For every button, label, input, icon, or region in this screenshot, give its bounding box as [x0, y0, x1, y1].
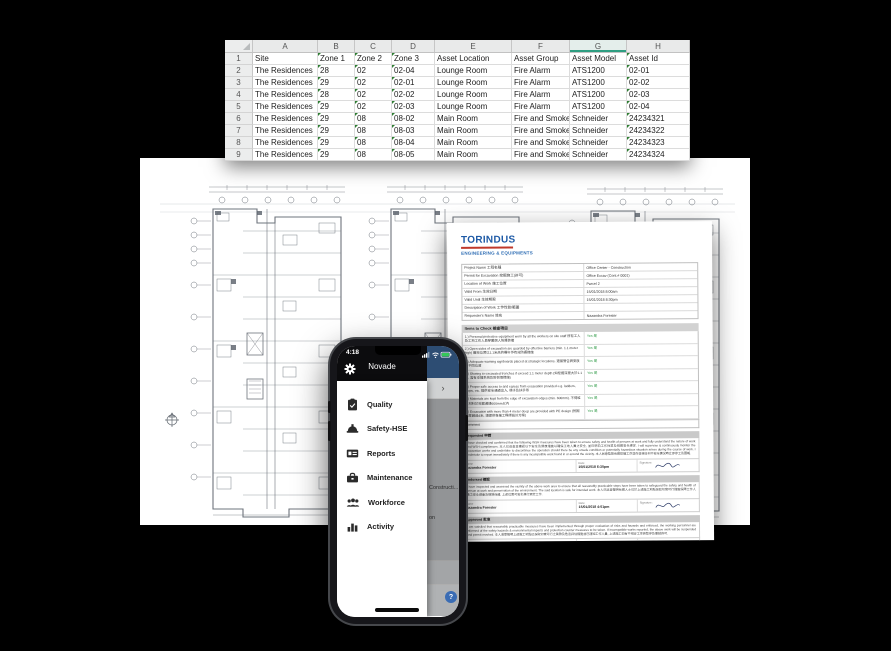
cell-asset-location[interactable]: Main Room	[435, 113, 512, 125]
checklist-answer: Yes 是	[585, 369, 698, 381]
cell-zone3[interactable]: 08-04	[392, 137, 435, 149]
column-header-a[interactable]: A	[253, 40, 318, 52]
checklist-table: 1.) Personal protective equipment worn b…	[462, 331, 700, 422]
table-row: 8 The Residences 29 08 08-04 Main Room F…	[225, 137, 690, 149]
cell-zone1[interactable]: 28	[318, 89, 355, 101]
cell-site[interactable]: The Residences	[253, 77, 318, 89]
cell-site[interactable]: The Residences	[253, 149, 318, 161]
section-body: I have inspected and assessed the vicini…	[463, 482, 700, 501]
cell-zone2[interactable]: Zone 2	[355, 53, 392, 65]
cell-site[interactable]: The Residences	[253, 65, 318, 77]
row-header[interactable]: 6	[225, 113, 253, 125]
column-header-h[interactable]: H	[627, 40, 690, 52]
cell-site[interactable]: Site	[253, 53, 318, 65]
cell-zone1[interactable]: 29	[318, 125, 355, 137]
row-header[interactable]: 3	[225, 77, 253, 89]
info-label: Valid From 生效日期	[462, 288, 584, 296]
table-row: 3 The Residences 29 02 02-01 Lounge Room…	[225, 77, 690, 89]
column-header-c[interactable]: C	[355, 40, 392, 52]
checklist-item-text: 2.) Open sides of excavation are guarded…	[463, 345, 585, 357]
checklist-answer: Yes 是	[585, 407, 698, 419]
cell-site[interactable]: The Residences	[253, 113, 318, 125]
help-button[interactable]: ?	[445, 591, 457, 603]
bar-chart-icon	[346, 520, 359, 533]
menu-item-maintenance[interactable]: Maintenance	[337, 468, 427, 488]
menu-item-activity[interactable]: Activity	[337, 517, 427, 537]
menu-item-reports[interactable]: Reports	[337, 443, 427, 463]
signature-scribble	[655, 540, 681, 542]
company-logo-subtitle: ENGINEERING & EQUIPMENTS	[461, 249, 698, 256]
checklist-item-text: 5.) Proper safe access to and egress fro…	[463, 382, 585, 394]
north-arrow-icon	[165, 413, 179, 427]
home-indicator[interactable]	[375, 608, 419, 612]
cell-asset-model[interactable]: Schneider	[570, 113, 627, 125]
checklist-answer: Yes 是	[585, 344, 698, 356]
info-value: Parcel 2	[584, 280, 697, 287]
table-row: 2 The Residences 28 02 02-04 Lounge Room…	[225, 65, 690, 77]
dimmed-app-background: › Constructi... on ?	[427, 346, 459, 617]
cell-asset-id[interactable]: 24234321	[627, 113, 690, 125]
people-icon	[346, 496, 360, 509]
row-header[interactable]: 8	[225, 137, 253, 149]
app-title: Novade	[337, 362, 427, 371]
signature-scribble	[654, 500, 680, 510]
cell-zone3[interactable]: 08-02	[392, 113, 435, 125]
signature-label: Signature:	[640, 500, 653, 504]
menu-label: Activity	[367, 522, 394, 531]
cell-zone2[interactable]: 08	[355, 125, 392, 137]
cell-zone1[interactable]: 29	[318, 137, 355, 149]
signature-cell: Signature:	[637, 459, 698, 471]
checklist-item-text: 3.) Adequate warning signboards placed a…	[463, 357, 585, 369]
spreadsheet-panel: A B C D E F G H 1 Site Zone 1 Zone 2 Zon…	[225, 40, 690, 161]
column-header-g-selected[interactable]: G	[570, 40, 627, 52]
row-header[interactable]: 2	[225, 65, 253, 77]
menu-item-quality[interactable]: Quality	[337, 394, 427, 414]
cell-asset-model[interactable]: Schneider	[570, 125, 627, 137]
checklist-item-text: 6.) Materials are kept from the edge of …	[463, 395, 585, 407]
cell-asset-model[interactable]: ATS1200	[570, 89, 627, 101]
cell-asset-location[interactable]: Lounge Room	[435, 101, 512, 113]
cell-asset-model[interactable]: ATS1200	[570, 65, 627, 77]
signature-row: Name Ken Ng Date: 15/01/2018 2:30pm Sign…	[463, 539, 700, 542]
cell-zone1[interactable]: 29	[318, 101, 355, 113]
cell-asset-model[interactable]: Schneider	[570, 149, 627, 161]
cell-zone1[interactable]: 29	[318, 149, 355, 161]
dimmed-footer-band: ?	[427, 585, 459, 616]
date-label: Date:	[579, 540, 635, 542]
cell-zone3[interactable]: 08-03	[392, 125, 435, 137]
section-body: I am satisfied that reasonably practicab…	[463, 522, 700, 541]
power-button[interactable]	[465, 415, 468, 441]
row-header[interactable]: 7	[225, 125, 253, 137]
info-label: Valid Until 生效期限	[462, 296, 584, 304]
table-row: 5 The Residences 29 02 02-03 Lounge Room…	[225, 101, 690, 113]
cell-asset-group[interactable]: Fire and Smoke A	[512, 149, 570, 161]
cell-zone3[interactable]: 02-03	[392, 101, 435, 113]
cell-asset-location[interactable]: Main Room	[435, 137, 512, 149]
cell-zone3[interactable]: 02-02	[392, 89, 435, 101]
cell-asset-location[interactable]: Main Room	[435, 125, 512, 137]
mute-switch[interactable]	[328, 401, 331, 413]
table-row: 9 The Residences 29 08 08-05 Main Room F…	[225, 149, 690, 161]
info-value: Office Excav (Cont.# 0001)	[584, 272, 697, 279]
checklist-answer: Yes 是	[585, 356, 698, 368]
company-logo-text: TORINDUS	[461, 233, 698, 246]
cell-asset-id[interactable]: 24234323	[627, 137, 690, 149]
column-header-e[interactable]: E	[435, 40, 512, 52]
cell-zone3[interactable]: Zone 3	[392, 53, 435, 65]
cell-asset-id[interactable]: 02-02	[627, 77, 690, 89]
cell-zone1[interactable]: 29	[318, 113, 355, 125]
signature-sections: Requested 申請 I have checked and confirme…	[462, 431, 700, 542]
cell-asset-group[interactable]: Fire and Smoke A	[512, 125, 570, 137]
toolbox-icon	[346, 471, 359, 484]
cell-asset-model[interactable]: ATS1200	[570, 101, 627, 113]
dimmed-band	[427, 561, 459, 585]
checklist-row: 7.) Excavation with more than 4 meter de…	[463, 407, 698, 421]
menu-item-safety-hse[interactable]: Safety-HSE	[337, 419, 427, 439]
cell-asset-group[interactable]: Fire and Smoke A	[512, 137, 570, 149]
checklist-answer: Yes 是	[585, 381, 698, 393]
checklist-answer: Yes 是	[585, 331, 698, 343]
signature-section: Endorsed 確認 I have inspected and assesse…	[463, 475, 700, 514]
battery-icon	[441, 352, 451, 357]
cell-zone2[interactable]: 08	[355, 137, 392, 149]
info-label: Location of Work 施工位置	[462, 280, 584, 288]
cell-asset-location[interactable]: Lounge Room	[435, 65, 512, 77]
menu-item-workforce[interactable]: Workforce	[337, 492, 427, 512]
sign-date-cell: Date: 15/01/2018 4:01pm	[577, 499, 638, 511]
signer-name: Nazandra Forester	[466, 505, 574, 510]
cell-asset-id[interactable]: 02-03	[627, 89, 690, 101]
partial-project-text-2: on	[429, 515, 435, 521]
sign-date-cell: Date: 15/01/2018 6:30pm	[576, 459, 637, 471]
cell-asset-id[interactable]: 24234322	[627, 125, 690, 137]
wifi-icon	[433, 353, 439, 358]
cell-zone2[interactable]: 02	[355, 101, 392, 113]
select-all-corner[interactable]	[225, 40, 253, 52]
row-header[interactable]: 4	[225, 89, 253, 101]
signature-section: Approved 批准 I am satisfied that reasonab…	[463, 515, 700, 542]
sheet-rows: 1 Site Zone 1 Zone 2 Zone 3 Asset Locati…	[225, 53, 690, 161]
cell-zone2[interactable]: 02	[355, 89, 392, 101]
signature-section: Requested 申請 I have checked and confirme…	[462, 431, 699, 473]
permit-info-table: Project Name 工程名稱 Office Center - Constr…	[461, 262, 698, 321]
sign-date-cell: Date: 15/01/2018 2:30pm	[577, 539, 638, 542]
column-header-b[interactable]: B	[318, 40, 355, 52]
cell-site[interactable]: The Residences	[253, 89, 318, 101]
signature-row: Name Nazandra Forester Date: 15/01/2018 …	[463, 499, 700, 514]
status-time: 4:18	[346, 349, 359, 356]
info-label: Permit for Excavation 挖掘施工(許可)	[462, 272, 584, 280]
id-card-icon	[346, 447, 359, 460]
list-row-chevron[interactable]: ›	[427, 378, 459, 399]
status-icons	[422, 350, 452, 359]
info-label: Description of Work 工作性質/範圍	[462, 304, 584, 312]
signature-row: Name Nazandra Forester Date: 15/01/2018 …	[463, 459, 700, 474]
section-body: I have checked and confirmed that the fo…	[462, 438, 699, 460]
row-header[interactable]: 9	[225, 149, 253, 161]
cell-asset-model[interactable]: Schneider	[570, 137, 627, 149]
cell-zone1[interactable]: 29	[318, 77, 355, 89]
cell-zone2[interactable]: 02	[355, 65, 392, 77]
cell-asset-id[interactable]: Asset Id	[627, 53, 690, 65]
info-label: Project Name 工程名稱	[462, 264, 584, 272]
cell-asset-model[interactable]: Asset Model	[570, 53, 627, 65]
signature-label: Signature:	[640, 540, 653, 542]
cell-asset-location[interactable]: Asset Location	[435, 53, 512, 65]
info-row: Requester's Name 姓名 Nazandra Forester	[463, 311, 698, 320]
cell-zone1[interactable]: 28	[318, 65, 355, 77]
cell-asset-location[interactable]: Main Room	[435, 149, 512, 161]
table-row: 7 The Residences 29 08 08-03 Main Room F…	[225, 125, 690, 137]
cell-asset-group[interactable]: Asset Group	[512, 53, 570, 65]
signer-name-cell: Name Ken Ng	[464, 539, 577, 541]
cell-site[interactable]: The Residences	[253, 137, 318, 149]
checklist-item-text: 7.) Excavation with more than 4 meter de…	[463, 407, 585, 419]
name-label: Name	[466, 541, 574, 542]
checklist-item-text: 4.) Shoring to excavated trenches if exc…	[463, 370, 585, 382]
permit-document: TORINDUS ENGINEERING & EQUIPMENTS Projec…	[447, 221, 714, 542]
column-header-f[interactable]: F	[512, 40, 570, 52]
comment-row: Comment	[462, 420, 699, 430]
info-value: 15/01/2018 8:30pm	[585, 296, 698, 303]
partial-project-text: Constructi...	[429, 485, 458, 491]
status-bar: 4:18	[337, 348, 459, 359]
signer-name-cell: Name Nazandra Forester	[464, 460, 577, 473]
dimmed-content: Constructi... on	[427, 399, 459, 561]
clipboard-check-icon	[346, 398, 359, 411]
cell-site[interactable]: The Residences	[253, 101, 318, 113]
row-header[interactable]: 1	[225, 53, 253, 65]
cell-site[interactable]: The Residences	[253, 125, 318, 137]
menu-label: Maintenance	[367, 473, 412, 482]
menu-label: Quality	[367, 400, 392, 409]
signature-cell: Signature:	[638, 539, 699, 542]
cell-zone2[interactable]: 08	[355, 113, 392, 125]
column-header-row: A B C D E F G H	[225, 40, 690, 53]
cell-zone1[interactable]: Zone 1	[318, 53, 355, 65]
info-value: Office Center - Construction	[584, 264, 697, 271]
collage: A B C D E F G H 1 Site Zone 1 Zone 2 Zon…	[0, 0, 891, 651]
cell-zone3[interactable]: 02-04	[392, 65, 435, 77]
signature-scribble	[654, 460, 680, 470]
cell-asset-location[interactable]: Lounge Room	[435, 89, 512, 101]
cell-zone3[interactable]: 08-05	[392, 149, 435, 161]
cell-asset-group[interactable]: Fire Alarm	[512, 65, 570, 77]
cell-asset-id[interactable]: 02-04	[627, 101, 690, 113]
info-value: Nazandra Forester	[585, 312, 698, 319]
cell-zone2[interactable]: 08	[355, 149, 392, 161]
volume-button[interactable]	[328, 421, 331, 441]
navigation-drawer: Quality Safety-HSE	[337, 381, 427, 617]
table-row: 6 The Residences 29 08 08-02 Main Room F…	[225, 113, 690, 125]
menu-label: Reports	[367, 449, 395, 458]
cell-asset-group[interactable]: Fire Alarm	[512, 101, 570, 113]
info-value: 15/01/2018 8:00am	[585, 288, 698, 295]
cell-asset-group[interactable]: Fire Alarm	[512, 89, 570, 101]
menu-label: Safety-HSE	[367, 424, 407, 433]
table-row: 1 Site Zone 1 Zone 2 Zone 3 Asset Locati…	[225, 53, 690, 65]
sign-date: 15/01/2018 6:30pm	[578, 464, 634, 468]
cell-asset-id[interactable]: 02-01	[627, 65, 690, 77]
row-header[interactable]: 5	[225, 101, 253, 113]
signature-label: Signature:	[639, 460, 652, 464]
signal-icon	[422, 351, 429, 357]
cell-asset-id[interactable]: 24234324	[627, 149, 690, 161]
cell-zone3[interactable]: 02-01	[392, 77, 435, 89]
phone-screen: › Constructi... on ?	[337, 346, 459, 617]
cell-asset-group[interactable]: Fire Alarm	[512, 77, 570, 89]
table-row: 4 The Residences 28 02 02-02 Lounge Room…	[225, 89, 690, 101]
checklist-answer: Yes 是	[585, 394, 698, 406]
logo-underline	[461, 246, 513, 248]
signer-name: Nazandra Forester	[466, 465, 574, 470]
column-header-d[interactable]: D	[392, 40, 435, 52]
sign-date: 15/01/2018 4:01pm	[579, 504, 635, 508]
signature-cell: Signature:	[638, 499, 699, 511]
cell-asset-location[interactable]: Lounge Room	[435, 77, 512, 89]
cell-asset-group[interactable]: Fire and Smoke A	[512, 113, 570, 125]
menu-label: Workforce	[368, 498, 405, 507]
chevron-right-icon: ›	[442, 383, 445, 393]
hardhat-icon	[346, 422, 359, 435]
info-label: Requester's Name 姓名	[463, 312, 585, 320]
cell-asset-model[interactable]: ATS1200	[570, 77, 627, 89]
phone-mockup: › Constructi... on ?	[330, 339, 466, 624]
info-value	[585, 306, 698, 309]
signer-name-cell: Name Nazandra Forester	[464, 500, 577, 513]
cell-zone2[interactable]: 02	[355, 77, 392, 89]
checklist-item-text: 1.) Personal protective equipment worn b…	[463, 332, 585, 344]
